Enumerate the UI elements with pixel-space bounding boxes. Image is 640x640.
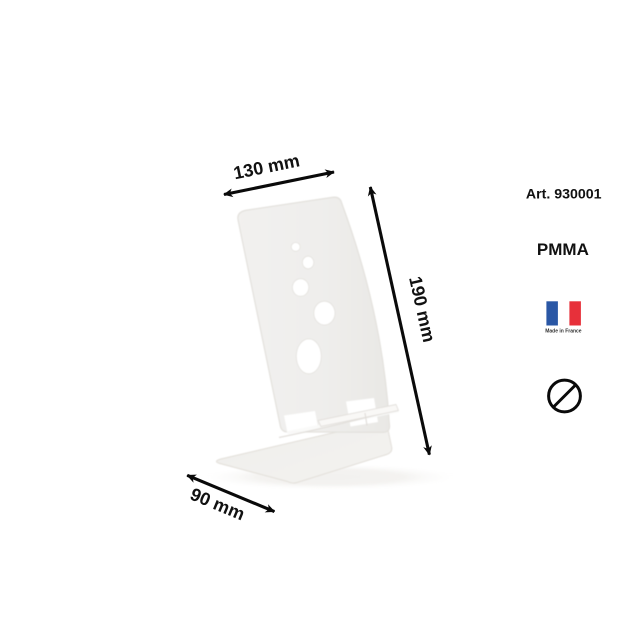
svg-text:130 mm: 130 mm xyxy=(232,150,302,183)
svg-text:190 mm: 190 mm xyxy=(405,274,439,344)
svg-text:90 mm: 90 mm xyxy=(187,484,247,524)
svg-text:PMMA: PMMA xyxy=(537,240,589,259)
svg-text:Art. 930001: Art. 930001 xyxy=(526,187,602,203)
svg-text:Made in France: Made in France xyxy=(545,329,582,335)
